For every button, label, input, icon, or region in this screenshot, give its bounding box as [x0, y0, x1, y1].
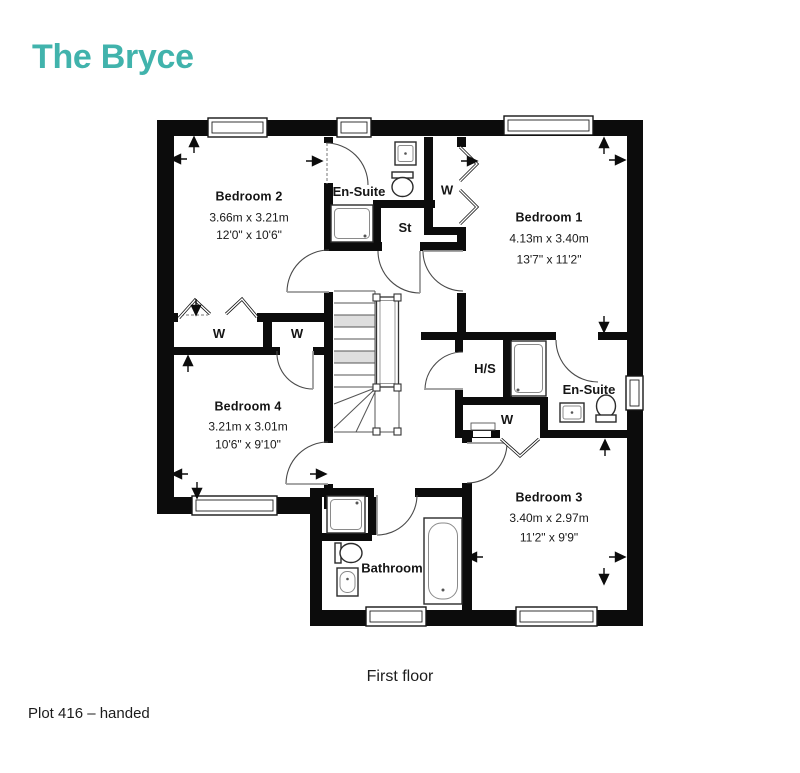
- bedroom-1-name: Bedroom 1: [515, 211, 582, 225]
- toilet-symbol: [392, 172, 413, 197]
- toilet-symbol: [596, 395, 616, 422]
- window: [626, 376, 643, 410]
- staircase: [334, 291, 401, 435]
- bedroom-3-name: Bedroom 3: [515, 491, 582, 505]
- door-storage: [378, 251, 420, 293]
- bathtub-symbol: [424, 518, 462, 604]
- door-bathroom: [377, 495, 417, 535]
- toilet-symbol: [335, 543, 362, 563]
- door-bedroom-4: [286, 442, 328, 484]
- shower-symbol: [511, 341, 546, 396]
- door-bedroom-3: [467, 443, 507, 483]
- window: [192, 496, 277, 515]
- ensuite-2-label: En-Suite: [563, 382, 616, 397]
- door-ensuite-2: [556, 340, 598, 382]
- bedroom-2-name: Bedroom 2: [215, 190, 282, 204]
- bedroom-1-metric: 4.13m x 3.40m: [509, 232, 588, 246]
- door-hs: [425, 352, 463, 390]
- bedroom-3-metric: 3.40m x 2.97m: [509, 511, 588, 525]
- hs-label: H/S: [474, 361, 496, 376]
- washbasin-symbol: [395, 142, 416, 165]
- floor-plan: Bedroom 2 3.66m x 3.21m 12'0" x 10'6" Be…: [0, 0, 800, 773]
- window: [366, 607, 426, 626]
- washbasin-symbol: [337, 568, 358, 596]
- page: The Bryce: [0, 0, 800, 773]
- window: [516, 607, 597, 626]
- shower-symbol: [331, 205, 373, 242]
- bedroom-2-imperial: 12'0" x 10'6": [216, 228, 282, 242]
- bedroom-4-imperial: 10'6" x 9'10": [215, 438, 281, 452]
- bifold-wardrobe-left: [179, 299, 257, 318]
- door-bedroom-2: [287, 250, 329, 292]
- wardrobe-shelf: [471, 423, 495, 430]
- door-bedroom-1: [423, 251, 463, 291]
- ensuite-1-label: En-Suite: [333, 184, 386, 199]
- window: [337, 118, 371, 137]
- wardrobe-label-top: W: [441, 183, 454, 198]
- window: [504, 116, 593, 135]
- room-labels: Bedroom 2 3.66m x 3.21m 12'0" x 10'6" Be…: [208, 183, 615, 576]
- bathroom-label: Bathroom: [361, 561, 422, 576]
- shower-symbol: [327, 496, 365, 533]
- bedroom-4-metric: 3.21m x 3.01m: [208, 420, 287, 434]
- wardrobe-label-right: W: [501, 412, 514, 427]
- wardrobe-label-left-2: W: [291, 326, 304, 341]
- bedroom-3-imperial: 11'2" x 9'9": [520, 531, 578, 545]
- floor-caption: First floor: [300, 668, 500, 686]
- wardrobe-label-left-1: W: [213, 326, 226, 341]
- storage-label: St: [399, 220, 413, 235]
- bedroom-4-name: Bedroom 4: [214, 400, 281, 414]
- window: [208, 118, 267, 137]
- door-ensuite-1: [326, 143, 368, 185]
- bedroom-1-imperial: 13'7" x 11'2": [517, 253, 582, 267]
- plot-label: Plot 416 – handed: [28, 705, 150, 722]
- wall-slot: [473, 431, 491, 437]
- bedroom-2-metric: 3.66m x 3.21m: [209, 211, 288, 225]
- door-wardrobe-bedroom-4: [277, 351, 313, 389]
- washbasin-symbol: [560, 403, 584, 422]
